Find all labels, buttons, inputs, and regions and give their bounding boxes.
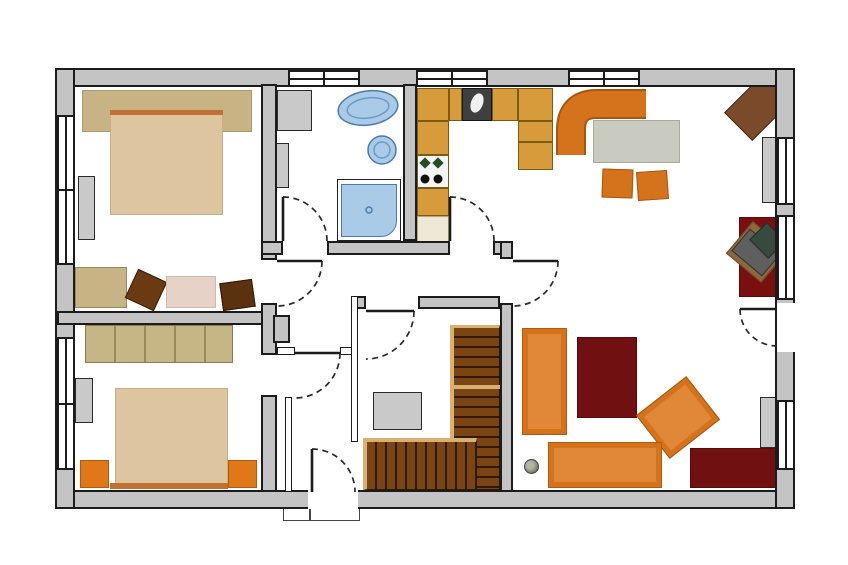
window-top-dining (568, 70, 640, 87)
room-entry-vestibule (292, 355, 350, 490)
bedroom2-dresser (75, 378, 93, 423)
wall-bedroom1-east-upper (261, 84, 277, 260)
dining-chair-1 (602, 168, 634, 198)
kitchen-counter-cream (417, 216, 449, 243)
front-door-threshold-divider (309, 508, 311, 521)
bedroom1-rug-khaki (75, 267, 127, 308)
living-rug (577, 337, 637, 418)
kitchen-counter-top-b (492, 88, 518, 121)
bedroom2-nightstand-right (228, 460, 257, 488)
window-right-lower (777, 400, 795, 470)
window-top-bathroom (288, 70, 360, 87)
kitchen-counter-left-b (417, 188, 449, 216)
bedroom2-nightstand-left (80, 460, 109, 488)
kitchen-counter-corner (417, 88, 449, 121)
window-left-bedroom1-divider (59, 189, 73, 191)
window-left-bedroom2 (57, 337, 75, 470)
kitchen-counter-top-c (518, 88, 553, 121)
floor-plan-canvas (0, 0, 848, 565)
front-door-threshold (283, 508, 360, 521)
sofa-vertical (522, 328, 567, 435)
dining-chair-2 (636, 170, 669, 201)
bedroom2-footboard (110, 483, 228, 489)
plant-pot (524, 459, 539, 474)
window-right-middle (777, 215, 795, 300)
floor-plan (0, 0, 848, 565)
wall-vestibule-north-a (277, 347, 295, 355)
bedroom2-wardrobe (85, 325, 233, 363)
wall-bath-south-a (261, 241, 283, 255)
window-left-bedroom2-divider (59, 403, 73, 405)
window-top-kitchen (416, 70, 488, 87)
kitchen-stove (417, 155, 449, 188)
dining-table (593, 120, 680, 163)
kitchen-sink-unit (462, 88, 492, 121)
wall-chimney-block (273, 315, 290, 343)
kitchen-counter-right-a (518, 121, 553, 142)
bedroom1-stool (219, 279, 256, 311)
opening-front-door (308, 490, 358, 509)
sofa-horizontal (548, 442, 662, 488)
closet-chest (373, 392, 422, 430)
bedroom1-dresser (78, 176, 95, 240)
wall-bedroom2-east (261, 395, 277, 492)
window-top-dining-divider (603, 72, 605, 85)
bedroom1-headboard (110, 110, 223, 115)
wall-bedrooms-divider (57, 311, 263, 325)
window-top-kitchen-divider (451, 72, 453, 85)
window-left-bedroom1 (57, 115, 75, 265)
bedroom2-double-bed (115, 388, 228, 488)
wall-vestibule-west (285, 397, 292, 492)
sideboard-rug (690, 448, 782, 488)
bathroom-washing-machine (277, 90, 312, 131)
kitchen-counter-left-a (417, 121, 449, 155)
bedroom1-double-bed (110, 110, 223, 215)
stairs-landing-divider (450, 385, 500, 389)
window-right-upper (777, 137, 795, 205)
sofa-vertical-inner (528, 334, 561, 429)
wall-bath-south-b (327, 241, 450, 255)
wall-bath-kitchen-divider (403, 84, 417, 241)
sofa-horizontal-inner (554, 448, 656, 482)
wall-outer-bottom (55, 490, 795, 509)
kitchen-counter-right-b (518, 142, 553, 170)
bedroom1-rug-pink (166, 276, 216, 308)
kitchen-counter-top-a (449, 88, 462, 121)
wall-living-west-upper (500, 241, 513, 259)
wall-vestibule-north-b (340, 347, 352, 355)
wall-living-west-lower (500, 303, 513, 492)
wall-closet-west (351, 296, 358, 442)
stairs-lower-flight (363, 438, 477, 490)
shower-tray (341, 184, 397, 237)
opening-terrace-door (777, 303, 795, 352)
wall-closet-north-b (418, 296, 500, 309)
window-top-bathroom-divider (323, 72, 325, 85)
